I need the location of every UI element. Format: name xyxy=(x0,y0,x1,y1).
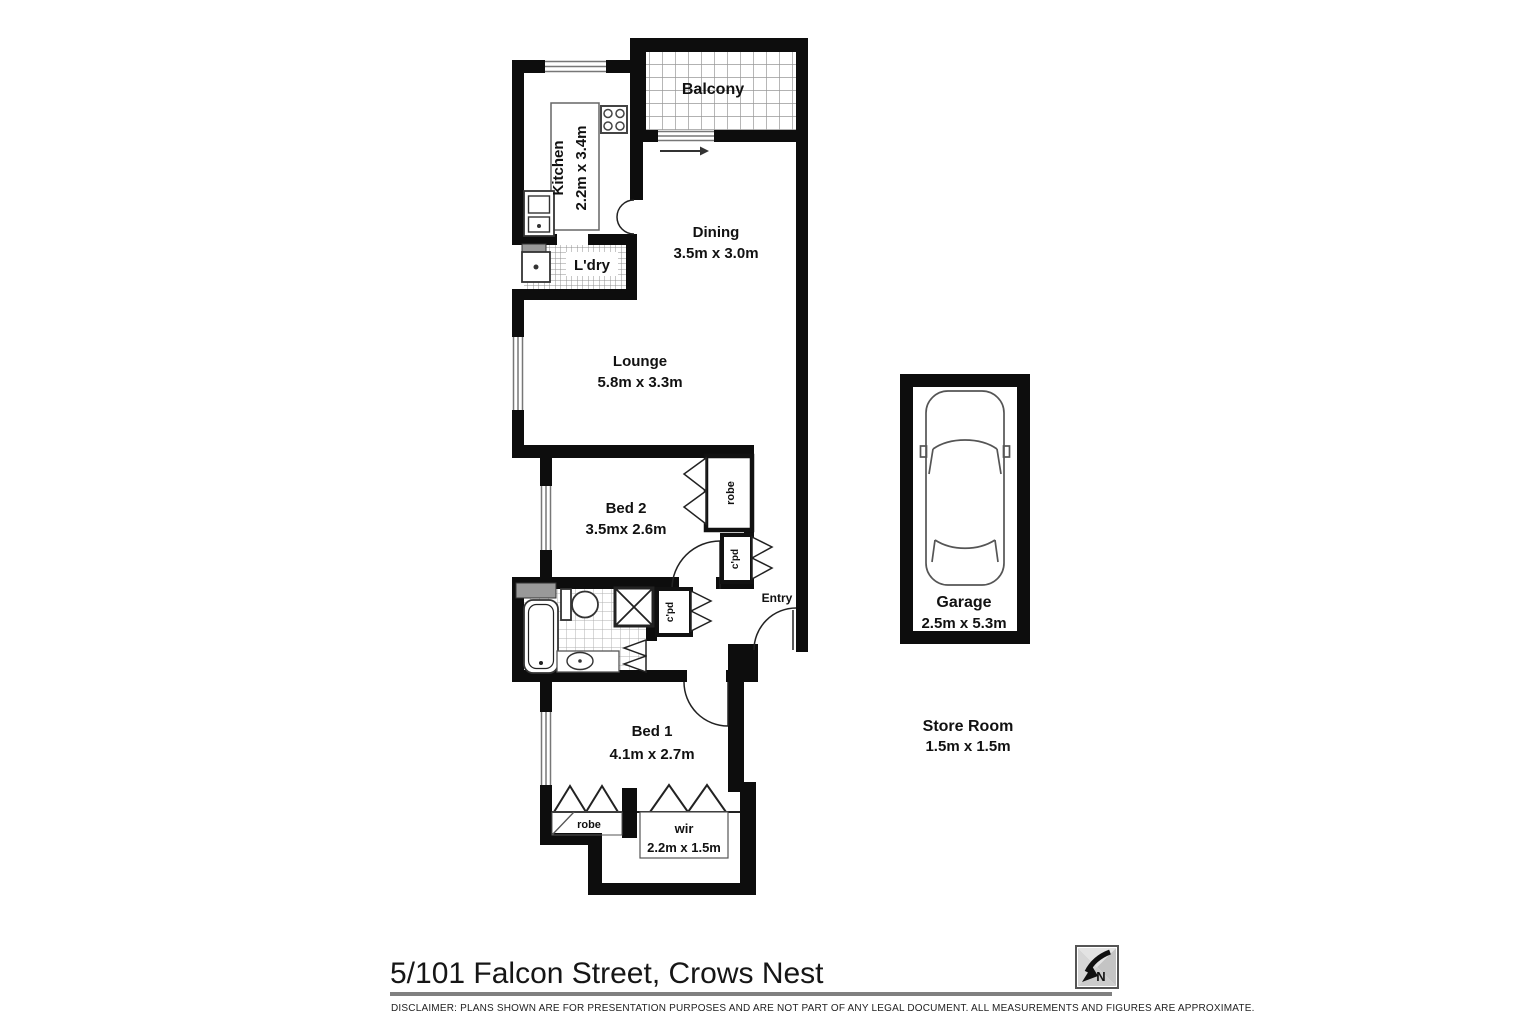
vanity-icon xyxy=(557,651,619,672)
bathtub-icon xyxy=(524,600,558,673)
bed1: Bed 1 4.1m x 2.7m robe wir 2.2m x 1.5m xyxy=(552,682,740,858)
wir-label: wir xyxy=(674,821,694,836)
balcony-sliding-door xyxy=(658,130,714,142)
address-title: 5/101 Falcon Street, Crows Nest xyxy=(390,957,824,990)
shower-icon xyxy=(615,588,653,626)
kitchen-dims: 2.2m x 3.4m xyxy=(573,125,590,210)
bed2-label: Bed 2 xyxy=(606,500,647,517)
kitchen-label: Kitchen xyxy=(550,140,567,195)
bathroom-shelf xyxy=(516,583,556,598)
bed2-window xyxy=(540,486,552,550)
entry-door xyxy=(754,608,796,650)
lounge-dims: 5.8m x 3.3m xyxy=(597,374,682,391)
store-room: Store Room 1.5m x 1.5m xyxy=(923,718,1014,755)
lounge-label: Lounge xyxy=(613,353,667,370)
balcony-door-arrow xyxy=(660,147,709,156)
floorplan-page: Balcony Kitchen 2.2m x 3.4m xyxy=(0,0,1534,1022)
bed2-robe-label: robe xyxy=(725,481,737,505)
bed2-dims: 3.5mx 2.6m xyxy=(586,521,667,538)
bed1-robe-label: robe xyxy=(577,819,601,831)
wir-dims: 2.2m x 1.5m xyxy=(647,840,721,855)
lounge-window xyxy=(512,337,524,410)
north-compass-icon: N xyxy=(1076,946,1118,988)
garage: Garage 2.5m x 5.3m xyxy=(900,374,1030,644)
compass-letter: N xyxy=(1096,969,1105,984)
bed1-robe: robe xyxy=(552,786,622,835)
bed1-label: Bed 1 xyxy=(632,723,673,740)
kitchen: Kitchen 2.2m x 3.4m xyxy=(524,103,634,236)
bed1-door xyxy=(684,682,728,726)
store-room-label: Store Room xyxy=(923,718,1014,735)
bed1-dims: 4.1m x 2.7m xyxy=(609,746,694,763)
entry-label: Entry xyxy=(762,591,793,605)
bed2-door xyxy=(672,541,720,589)
garage-dims: 2.5m x 5.3m xyxy=(921,615,1006,632)
lounge: Lounge 5.8m x 3.3m xyxy=(597,353,682,391)
garage-label: Garage xyxy=(936,594,991,611)
entry: Entry xyxy=(754,591,796,650)
store-room-dims: 1.5m x 1.5m xyxy=(925,738,1010,755)
kitchen-window xyxy=(545,60,606,73)
hall-cupboard-label: c'pd xyxy=(730,549,741,569)
laundry-tub-icon xyxy=(522,252,550,282)
bed2-robe: robe xyxy=(684,456,752,530)
bath-cupboard: c'pd xyxy=(657,589,711,635)
hall-cupboard: c'pd xyxy=(722,535,772,582)
bath-cupboard-label: c'pd xyxy=(665,602,676,622)
dining-dims: 3.5m x 3.0m xyxy=(673,245,758,262)
title-rule xyxy=(390,992,1112,996)
stove-icon xyxy=(601,106,627,133)
dining-label: Dining xyxy=(693,224,740,241)
walk-in-robe: wir 2.2m x 1.5m xyxy=(637,785,740,858)
laundry-label: L'dry xyxy=(574,257,611,274)
balcony-label: Balcony xyxy=(682,81,744,98)
bed1-window xyxy=(540,712,552,785)
footer: 5/101 Falcon Street, Crows Nest DISCLAIM… xyxy=(390,946,1255,1014)
kitchen-swing-door xyxy=(617,200,634,234)
car-icon xyxy=(921,391,1010,585)
toilet-icon xyxy=(561,589,598,620)
kitchen-sink-icon xyxy=(524,191,554,236)
floorplan-drawing: Balcony Kitchen 2.2m x 3.4m xyxy=(0,0,1534,1022)
dining: Dining 3.5m x 3.0m xyxy=(673,224,758,262)
disclaimer-text: DISCLAIMER: PLANS SHOWN ARE FOR PRESENTA… xyxy=(391,1003,1255,1014)
